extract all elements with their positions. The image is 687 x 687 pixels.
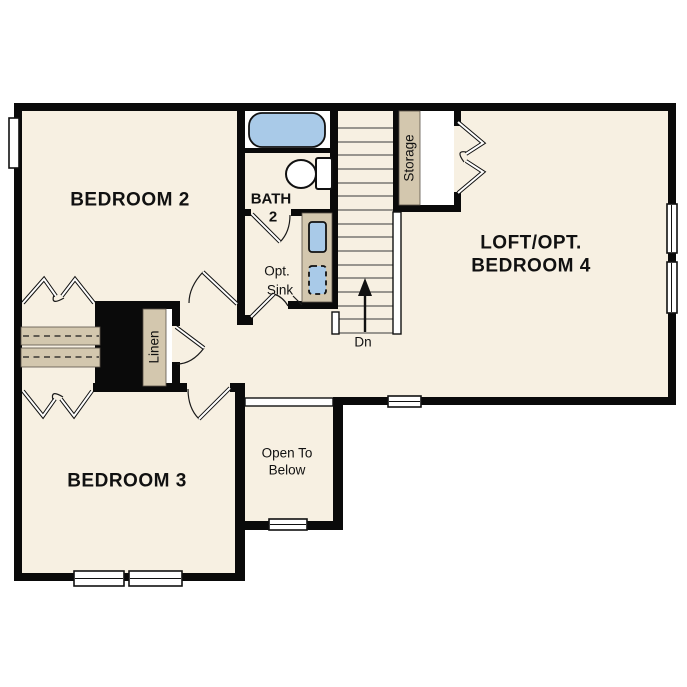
window-bedroom2-left bbox=[9, 118, 19, 168]
wall-linen-jamb-top bbox=[172, 309, 180, 326]
wall-openbelow-right bbox=[333, 397, 343, 530]
wall-loft-bottom bbox=[333, 397, 676, 405]
stair-rail-left bbox=[332, 312, 339, 334]
vanity-sink bbox=[309, 222, 326, 252]
wall-top bbox=[14, 103, 676, 111]
stair-rail-right bbox=[393, 212, 401, 334]
wall-storage-jamb-bottom bbox=[454, 192, 461, 212]
wall-closet-block bbox=[95, 301, 143, 391]
open-below-label-line1: Open To bbox=[262, 446, 313, 461]
storage-label: Storage bbox=[402, 134, 417, 181]
open-below-railing bbox=[245, 398, 333, 406]
bedroom3-label: BEDROOM 3 bbox=[67, 471, 187, 492]
wall-linen-jamb-bottom bbox=[172, 362, 180, 390]
floor-plan: BEDROOM 2 BATH 2 Opt. Sink Storage LOFT/… bbox=[0, 0, 687, 687]
wall-storage-bottom bbox=[399, 205, 461, 212]
wall-bedroom3-top-right bbox=[230, 383, 245, 392]
open-below-label-line2: Below bbox=[269, 463, 306, 478]
loft-label-line1: LOFT/OPT. bbox=[480, 233, 582, 254]
bath2-label-line1: BATH bbox=[251, 191, 292, 208]
opt-sink-label-line2: Sink bbox=[267, 283, 294, 298]
wall-bath-door-left bbox=[237, 209, 251, 216]
storage-interior bbox=[420, 111, 454, 205]
opt-sink-label-line1: Opt. bbox=[264, 264, 290, 279]
bath2-label-line2: 2 bbox=[269, 209, 277, 226]
toilet-bowl bbox=[286, 160, 316, 188]
stairs-down-label: Dn bbox=[354, 335, 371, 350]
toilet-tank bbox=[316, 158, 332, 189]
wall-tub-edge bbox=[245, 148, 330, 153]
floor-plan-page: BEDROOM 2 BATH 2 Opt. Sink Storage LOFT/… bbox=[0, 0, 687, 687]
loft-label-line2: BEDROOM 4 bbox=[471, 256, 591, 277]
bedroom2-label: BEDROOM 2 bbox=[70, 190, 190, 211]
wall-bedroom3-right bbox=[235, 383, 245, 581]
optional-sink bbox=[309, 266, 326, 294]
wall-openbelow-bottom-right bbox=[307, 521, 335, 530]
wall-right bbox=[668, 103, 676, 405]
bathtub bbox=[249, 113, 325, 147]
linen-label: Linen bbox=[147, 330, 162, 363]
